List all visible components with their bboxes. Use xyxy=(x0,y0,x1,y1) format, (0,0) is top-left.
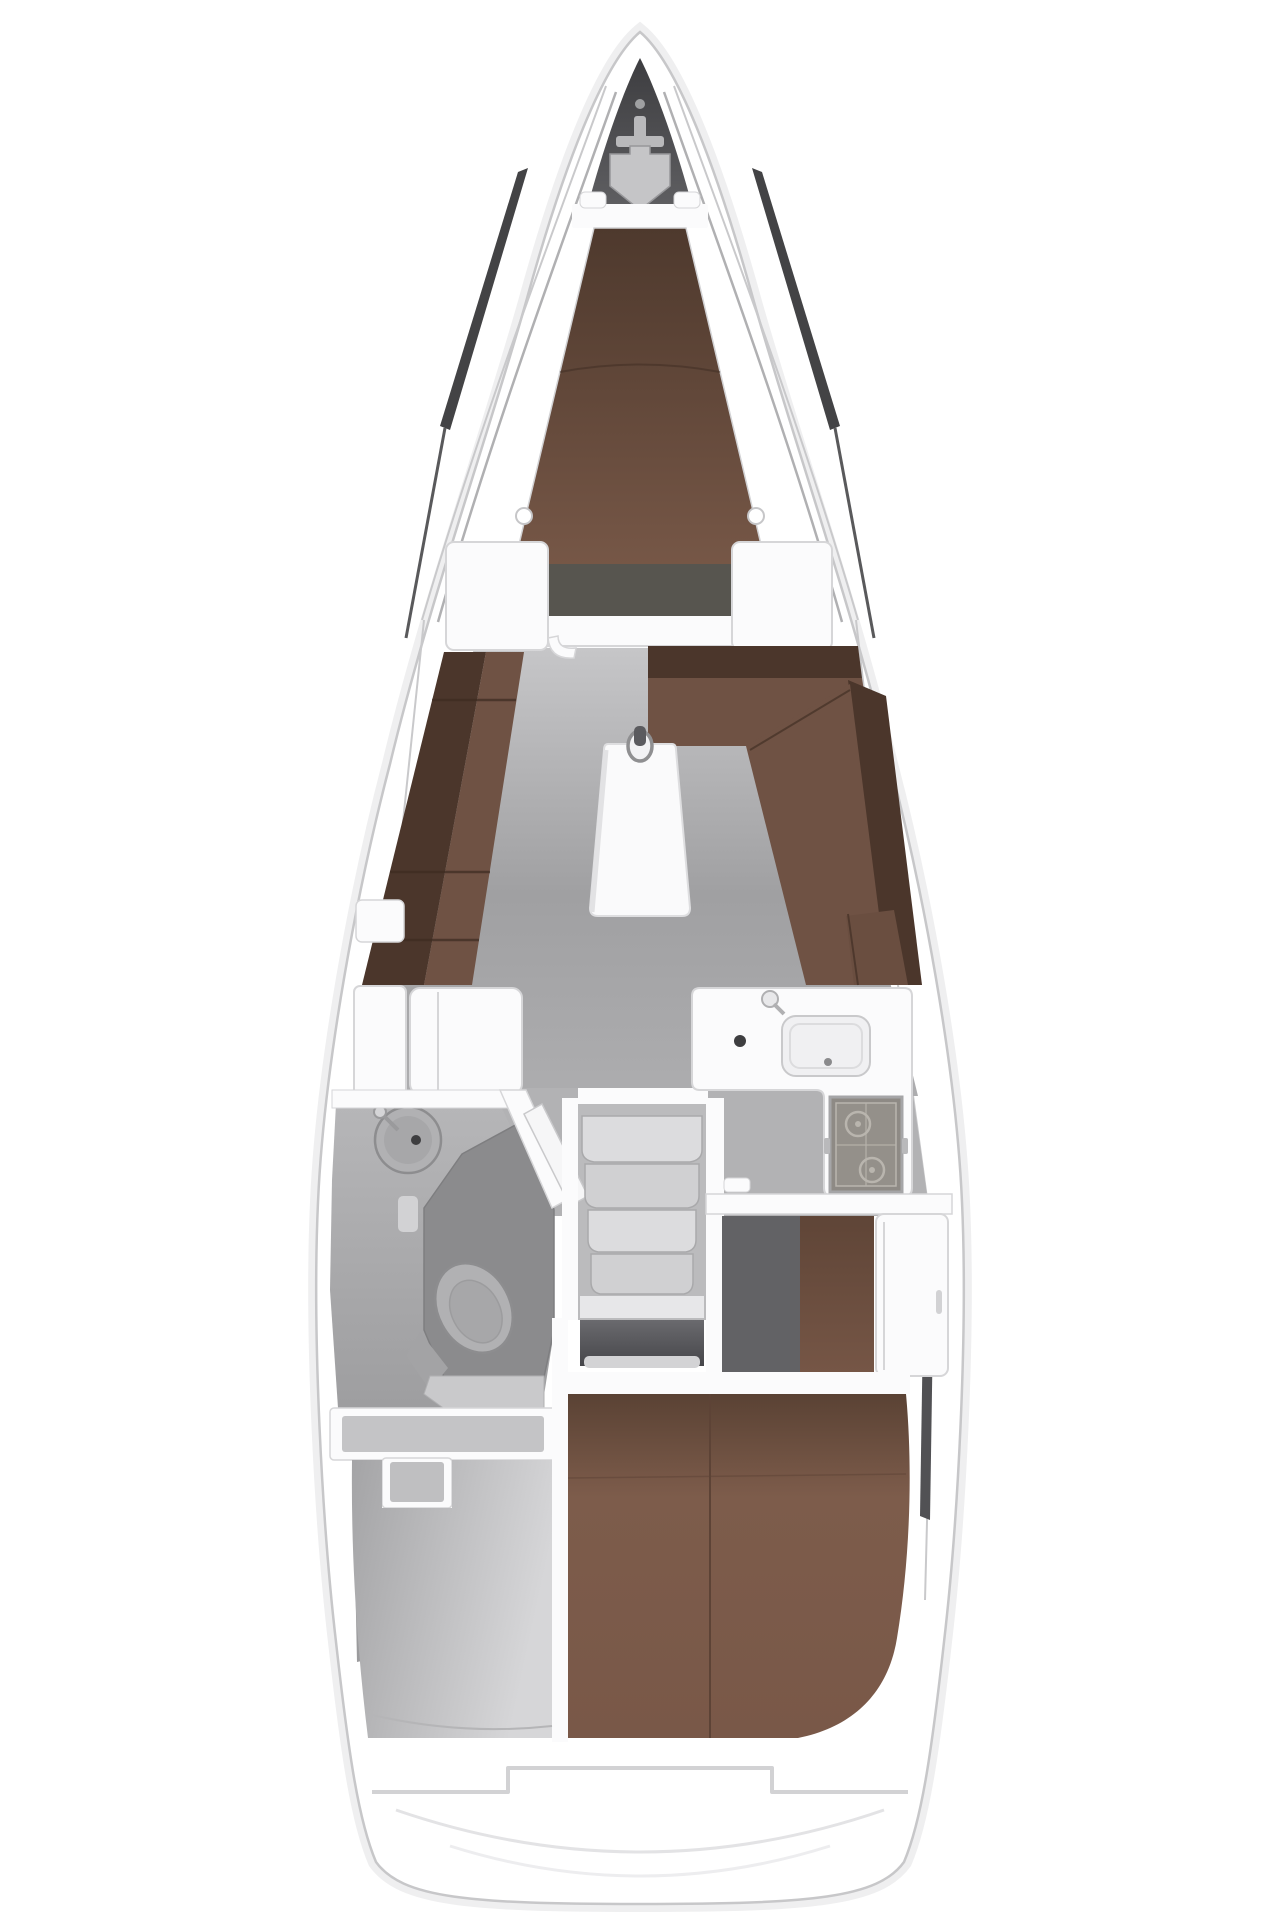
counter-drain-icon xyxy=(734,1035,746,1047)
step-4 xyxy=(591,1254,693,1294)
locker-tab-recess xyxy=(390,1462,444,1502)
companionway-left-wall xyxy=(562,1098,578,1320)
nav-cabinet xyxy=(410,988,522,1094)
sink-drain-icon xyxy=(824,1058,832,1066)
fore-bulkhead-tab-right xyxy=(674,192,700,208)
vanity-handle-icon xyxy=(398,1196,418,1232)
yacht-floorplan-svg xyxy=(0,0,1280,1920)
wardrobe-handle-icon xyxy=(936,1290,942,1314)
companionway-landing xyxy=(580,1296,704,1318)
burner-aft-center xyxy=(869,1167,875,1173)
shower-seat xyxy=(424,1376,544,1410)
head-compartment xyxy=(330,1090,588,1508)
stove-gimbal-right xyxy=(902,1138,908,1154)
berth-head-wall xyxy=(560,1372,910,1394)
mast-post-slot xyxy=(634,726,646,746)
reading-light-port-icon xyxy=(516,508,532,524)
aft-cabin-entry-floor xyxy=(722,1216,800,1374)
starboard-side-cabinet xyxy=(732,542,832,650)
dinette-forward-back xyxy=(648,646,862,678)
port-side-cabinet xyxy=(446,542,548,650)
head-aft-locker-recess xyxy=(342,1416,544,1452)
aft-left-wall xyxy=(552,1318,568,1742)
burner-forward-center xyxy=(855,1121,861,1127)
aft-berth-side xyxy=(800,1216,874,1374)
opening-lip xyxy=(584,1356,700,1368)
aft-cabin-wall-forward xyxy=(706,1194,952,1214)
v-berth-foot-blanket xyxy=(538,564,742,622)
chainplate-cover xyxy=(356,900,404,942)
step-1 xyxy=(582,1116,702,1162)
port-hull-cabinet xyxy=(354,986,406,1098)
fore-bulkhead-tab-left xyxy=(580,192,606,208)
yacht-floorplan xyxy=(0,0,1280,1925)
step-2 xyxy=(585,1164,699,1208)
companionway xyxy=(562,1088,750,1394)
stove-gimbal-left xyxy=(824,1138,830,1154)
companionway-right-wall xyxy=(706,1098,724,1394)
head-forward-wall xyxy=(332,1090,528,1108)
companionway-hinge-tab xyxy=(724,1178,750,1192)
companionway-sill xyxy=(578,1088,708,1104)
aft-berth-mattress xyxy=(568,1394,910,1738)
washbasin-drain-icon xyxy=(411,1135,421,1145)
step-3 xyxy=(588,1210,696,1252)
bow-fitting-icon xyxy=(635,99,645,109)
reading-light-starboard-icon xyxy=(748,508,764,524)
